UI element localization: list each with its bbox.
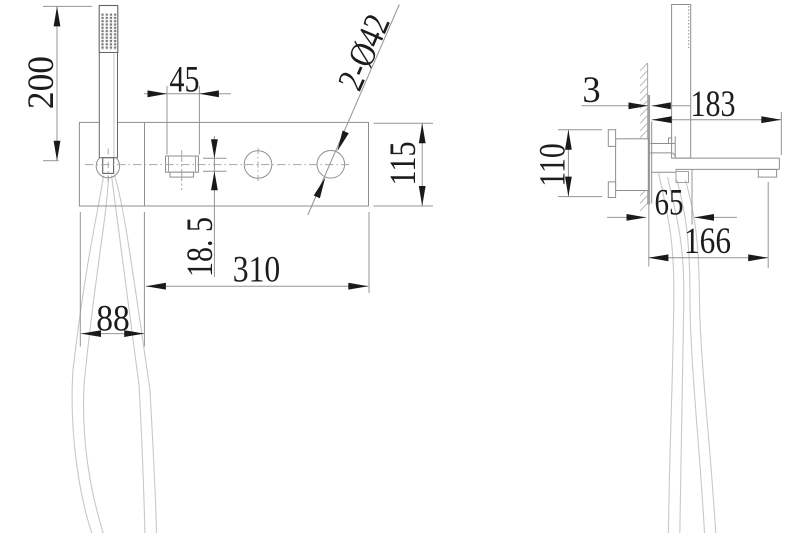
svg-text:166: 166 xyxy=(684,220,731,261)
svg-text:88: 88 xyxy=(96,298,130,339)
svg-text:200: 200 xyxy=(20,56,61,109)
svg-text:110: 110 xyxy=(532,143,573,187)
svg-text:310: 310 xyxy=(233,249,281,290)
svg-text:45: 45 xyxy=(170,59,200,100)
svg-text:65: 65 xyxy=(655,182,684,223)
svg-text:115: 115 xyxy=(382,142,423,186)
svg-text:18. 5: 18. 5 xyxy=(179,217,220,277)
svg-text:183: 183 xyxy=(691,83,736,124)
svg-text:3: 3 xyxy=(582,69,600,110)
